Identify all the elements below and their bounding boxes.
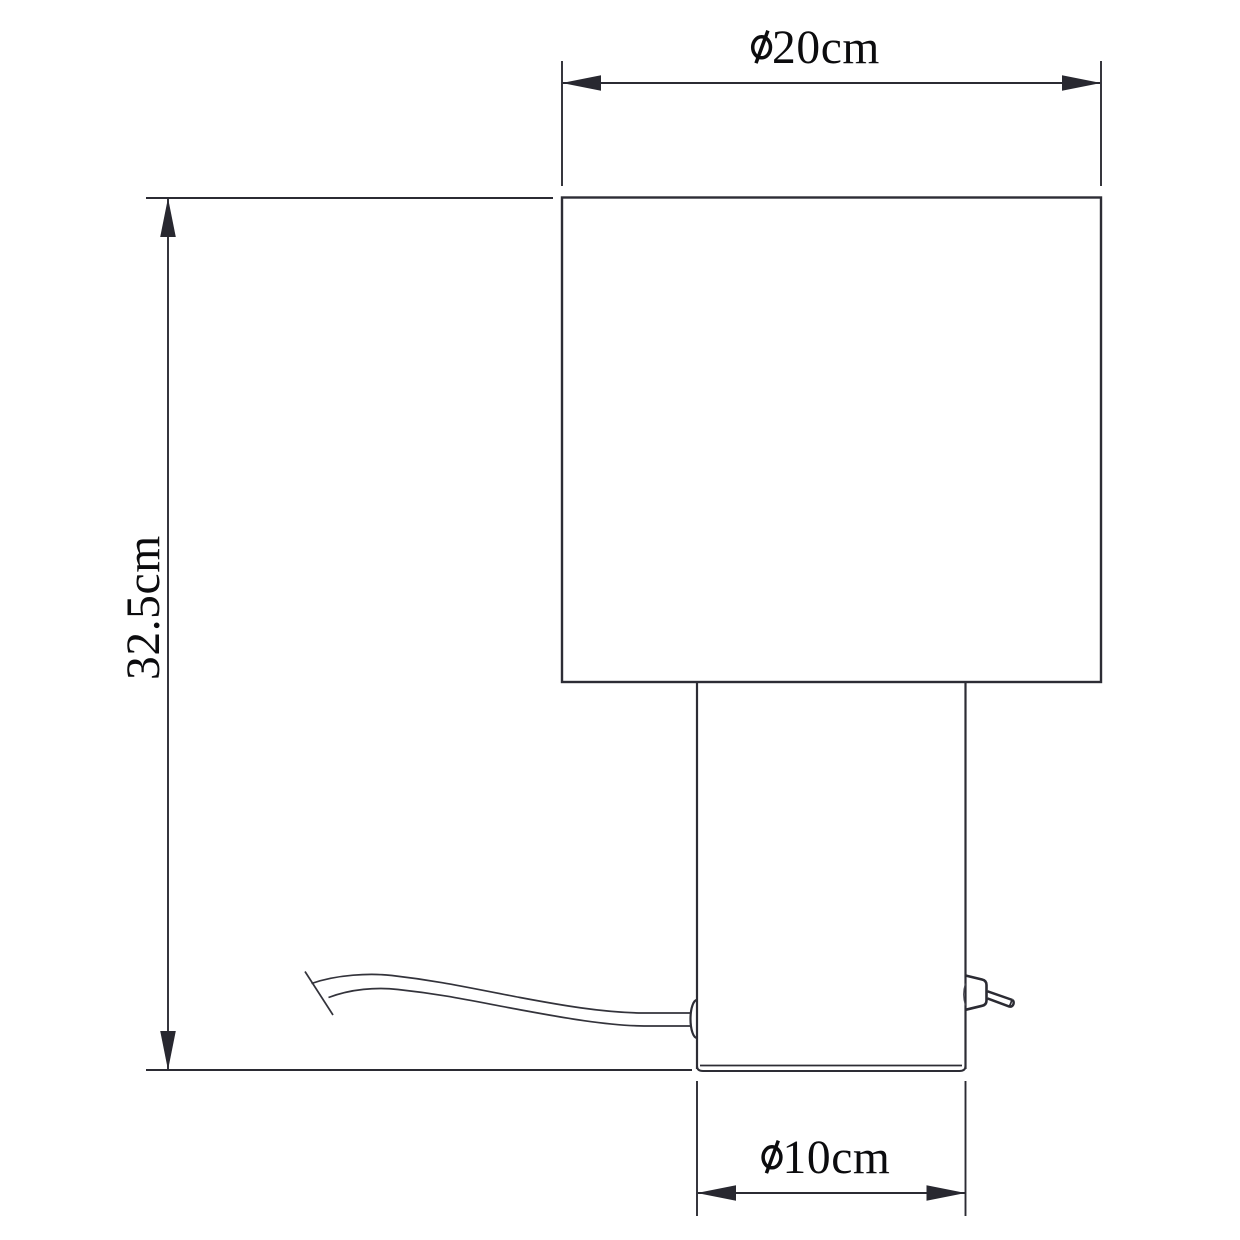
svg-text:10cm: 10cm [783,1132,891,1184]
svg-text:20cm: 20cm [772,22,880,74]
svg-text:32.5cm: 32.5cm [118,535,170,680]
